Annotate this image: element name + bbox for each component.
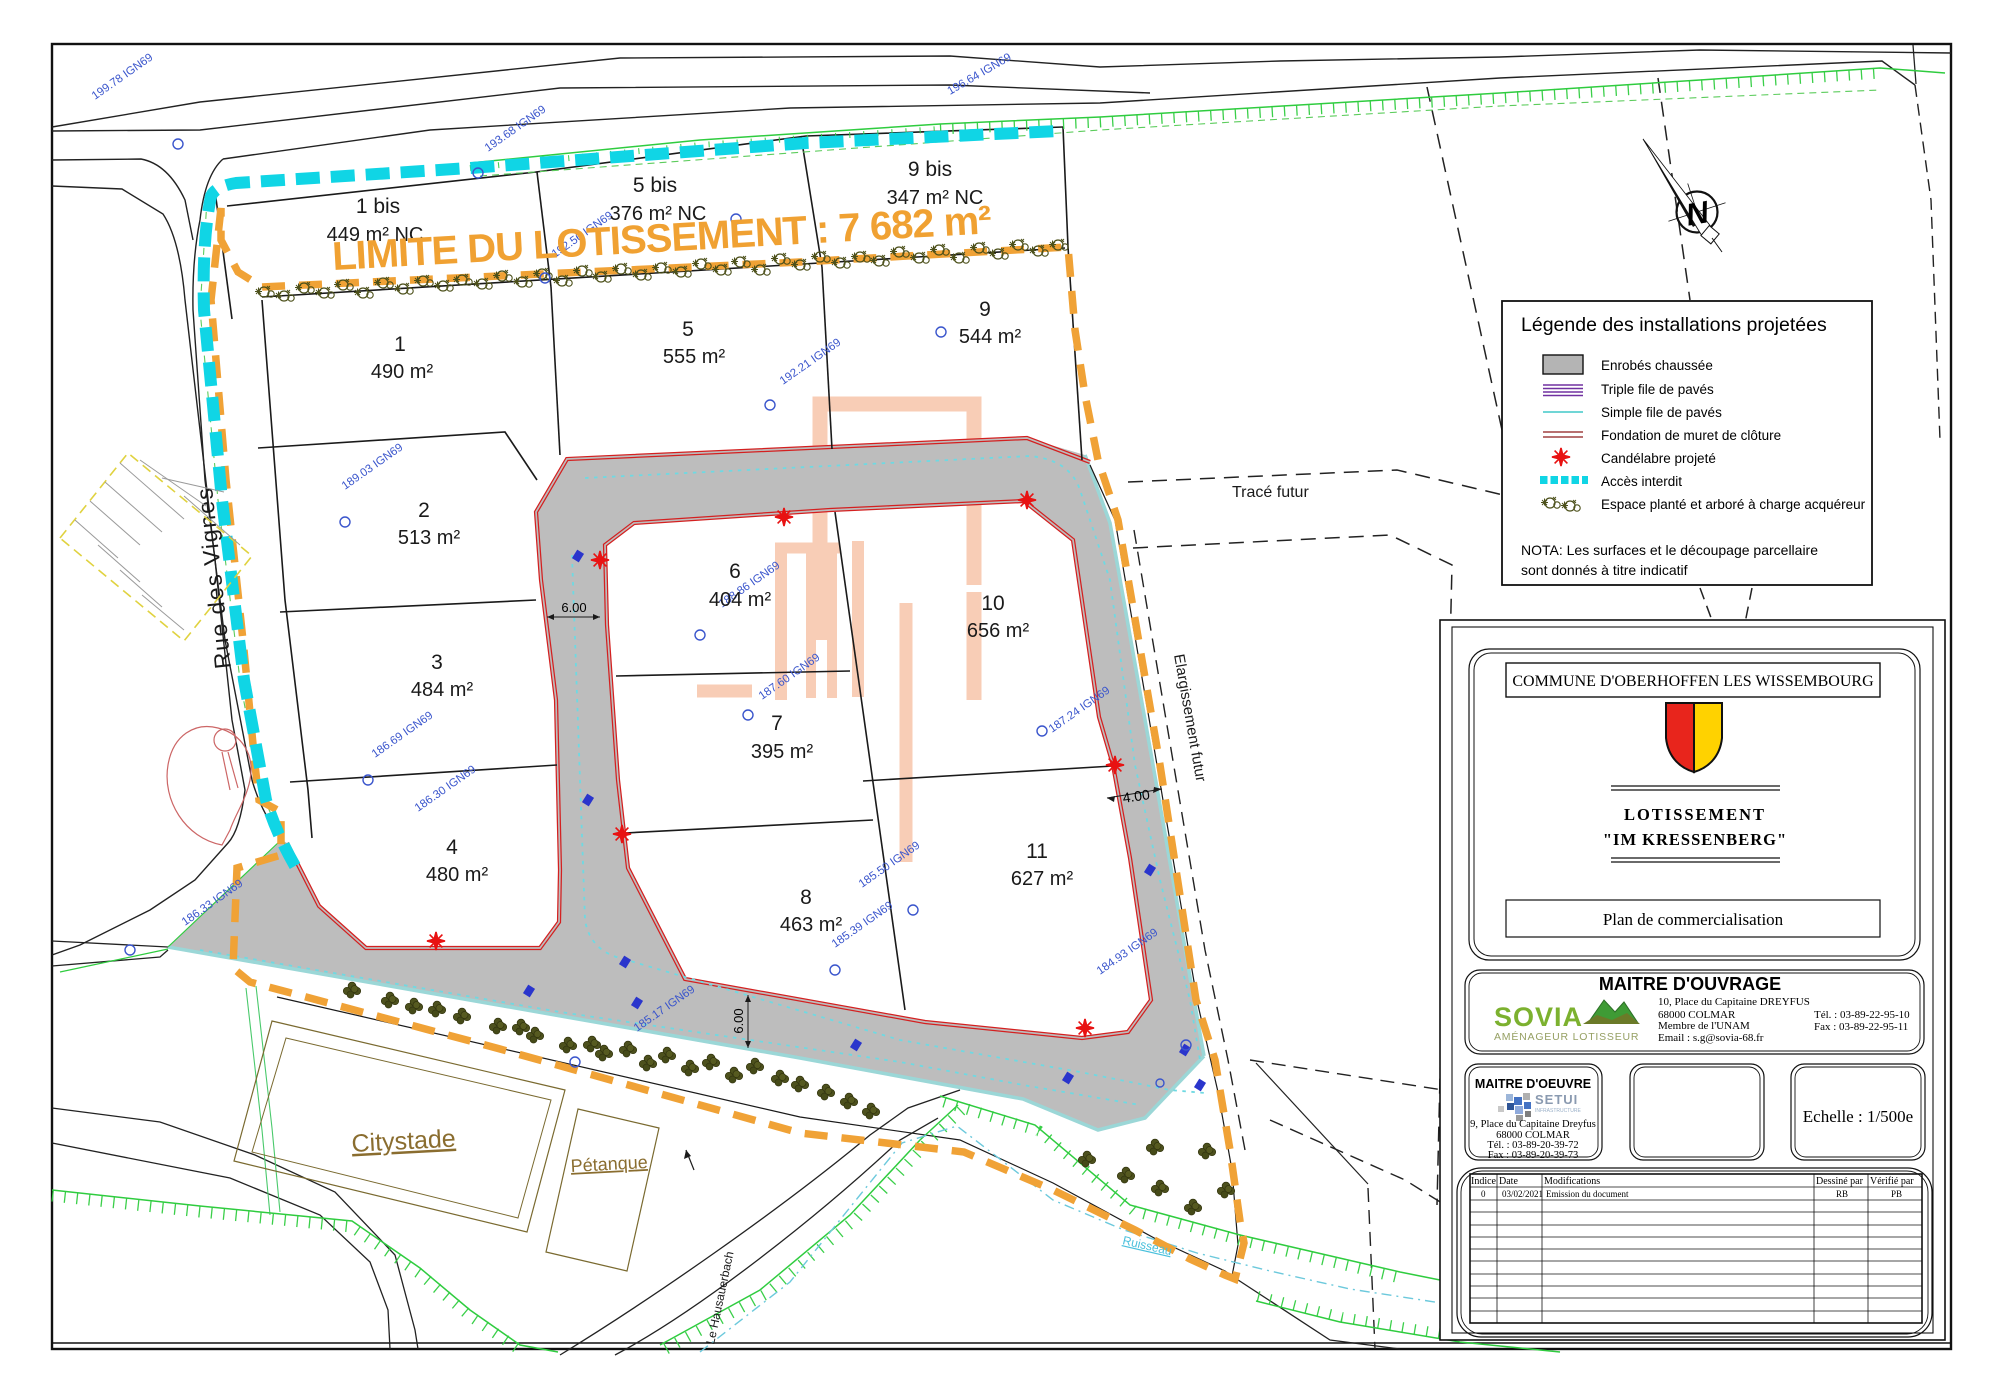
svg-text:490 m²: 490 m²: [371, 361, 434, 383]
svg-text:Vérifié par: Vérifié par: [1870, 1176, 1914, 1187]
svg-text:Emission du document: Emission du document: [1546, 1189, 1629, 1199]
svg-text:RB: RB: [1836, 1189, 1848, 1199]
svg-text:6: 6: [729, 560, 741, 583]
svg-text:COMMUNE D'OBERHOFFEN LES WISSE: COMMUNE D'OBERHOFFEN LES WISSEMBOURG: [1512, 673, 1874, 690]
svg-text:5 bis: 5 bis: [633, 174, 677, 197]
svg-text:Légende des installations proj: Légende des installations projetées: [1521, 314, 1827, 336]
svg-text:Citystade: Citystade: [351, 1125, 457, 1158]
svg-text:544 m²: 544 m²: [959, 326, 1022, 348]
svg-text:9, Place du Capitaine Dreyfus: 9, Place du Capitaine Dreyfus: [1470, 1119, 1596, 1130]
svg-text:5: 5: [682, 318, 694, 341]
svg-text:SETUI: SETUI: [1535, 1092, 1578, 1107]
svg-text:Fondation de muret de clôture: Fondation de muret de clôture: [1601, 428, 1781, 443]
svg-text:484 m²: 484 m²: [411, 679, 474, 701]
svg-text:Pétanque: Pétanque: [570, 1152, 648, 1176]
svg-text:7: 7: [771, 712, 783, 735]
svg-text:463 m²: 463 m²: [780, 914, 843, 936]
svg-text:Dessiné par: Dessiné par: [1816, 1176, 1864, 1187]
svg-text:AMÉNAGEUR LOTISSEUR: AMÉNAGEUR LOTISSEUR: [1494, 1030, 1639, 1043]
svg-text:Echelle : 1/500e: Echelle : 1/500e: [1803, 1107, 1913, 1126]
svg-text:Membre de l'UNAM: Membre de l'UNAM: [1658, 1020, 1750, 1032]
svg-text:sont donnés à titre indicatif: sont donnés à titre indicatif: [1521, 562, 1688, 578]
svg-text:MAITRE D'OUVRAGE: MAITRE D'OUVRAGE: [1599, 974, 1781, 994]
svg-text:Email : s.g@sovia-68.fr: Email : s.g@sovia-68.fr: [1658, 1032, 1764, 1044]
svg-text:10: 10: [981, 592, 1004, 615]
svg-text:513 m²: 513 m²: [398, 527, 461, 549]
svg-text:03/02/2021: 03/02/2021: [1502, 1189, 1543, 1199]
svg-text:Tél. : 03-89-22-95-10: Tél. : 03-89-22-95-10: [1814, 1009, 1910, 1021]
svg-text:0: 0: [1481, 1189, 1486, 1199]
svg-text:Plan de commercialisation: Plan de commercialisation: [1603, 910, 1784, 929]
svg-text:Enrobés chaussée: Enrobés chaussée: [1601, 358, 1713, 373]
svg-text:6.00: 6.00: [731, 1008, 746, 1033]
svg-text:Fax : 03-89-20-39-73: Fax : 03-89-20-39-73: [1488, 1150, 1578, 1161]
svg-text:Date: Date: [1499, 1176, 1518, 1187]
svg-text:9 bis: 9 bis: [908, 158, 952, 181]
svg-text:Indice: Indice: [1471, 1176, 1497, 1187]
svg-text:Espace planté et arboré à char: Espace planté et arboré à charge acquére…: [1601, 497, 1866, 512]
svg-text:656 m²: 656 m²: [967, 620, 1030, 642]
svg-text:NOTA: Les surfaces et le décou: NOTA: Les surfaces et le découpage parce…: [1521, 542, 1818, 558]
svg-text:11: 11: [1026, 840, 1048, 863]
svg-text:10, Place du Capitaine DREYFUS: 10, Place du Capitaine DREYFUS: [1658, 996, 1810, 1008]
svg-text:627 m²: 627 m²: [1011, 868, 1074, 890]
svg-text:Tracé futur: Tracé futur: [1232, 484, 1309, 501]
svg-text:9: 9: [979, 298, 991, 321]
svg-text:PB: PB: [1891, 1189, 1902, 1199]
svg-text:480 m²: 480 m²: [426, 864, 489, 886]
svg-text:SOVIA: SOVIA: [1494, 1002, 1583, 1032]
svg-text:INFRASTRUCTURE: INFRASTRUCTURE: [1535, 1108, 1581, 1114]
svg-text:LOTISSEMENT: LOTISSEMENT: [1624, 805, 1766, 824]
svg-text:6.00: 6.00: [561, 600, 586, 615]
svg-text:404 m²: 404 m²: [709, 589, 772, 611]
svg-text:8: 8: [800, 886, 812, 909]
svg-text:MAITRE D'OEUVRE: MAITRE D'OEUVRE: [1475, 1077, 1591, 1091]
svg-text:Accès interdit: Accès interdit: [1601, 474, 1682, 489]
svg-text:Fax : 03-89-22-95-11: Fax : 03-89-22-95-11: [1814, 1021, 1908, 1033]
svg-text:4: 4: [446, 836, 458, 859]
svg-text:555 m²: 555 m²: [663, 346, 726, 368]
svg-text:Modifications: Modifications: [1544, 1176, 1600, 1187]
svg-text:"IM KRESSENBERG": "IM KRESSENBERG": [1603, 830, 1787, 849]
svg-text:1: 1: [394, 333, 406, 356]
svg-text:3: 3: [431, 651, 443, 674]
svg-text:Simple file de pavés: Simple file de pavés: [1601, 405, 1722, 420]
svg-text:1 bis: 1 bis: [356, 195, 400, 218]
svg-text:Candélabre projeté: Candélabre projeté: [1601, 451, 1716, 466]
svg-text:2: 2: [418, 499, 430, 522]
svg-text:Triple file de pavés: Triple file de pavés: [1601, 382, 1714, 397]
svg-text:395 m²: 395 m²: [751, 741, 814, 763]
